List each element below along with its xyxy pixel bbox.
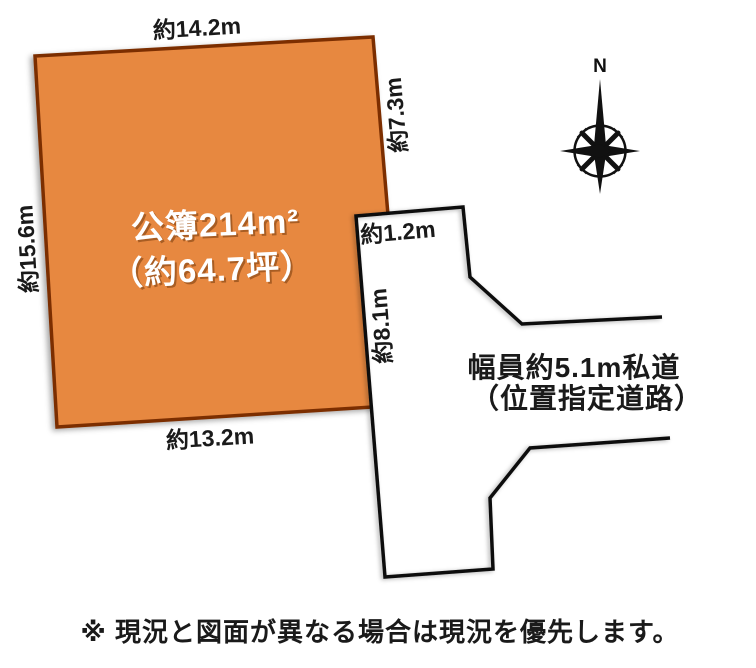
dim-left-label: 約15.6m: [11, 204, 42, 294]
land-plot-diagram: 公簿214m² （約64.7坪） 公簿214m² （約64.7坪） 約14.2m…: [0, 0, 756, 668]
parcel-area-line1: 公簿214m²: [130, 202, 300, 246]
dim-bottom-label: 約13.2m: [165, 422, 255, 453]
disclaimer-note: ※ 現況と図面が異なる場合は現況を優先します。: [81, 617, 680, 647]
road-name-line2: （位置指定道路）: [471, 382, 703, 414]
dim-top-label: 約14.2m: [152, 12, 242, 43]
road-name-line1: 幅員約5.1m私道: [468, 351, 681, 383]
road-name-label: 幅員約5.1m私道 （位置指定道路）: [468, 351, 703, 414]
compass-north-label: N: [593, 56, 607, 77]
